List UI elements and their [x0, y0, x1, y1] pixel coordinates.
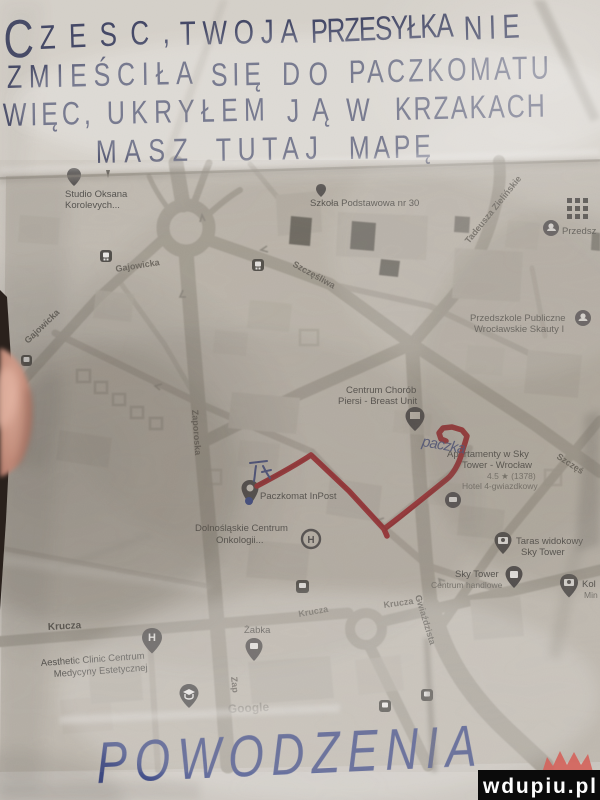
svg-text:wdupiu.pl: wdupiu.pl: [482, 775, 596, 798]
